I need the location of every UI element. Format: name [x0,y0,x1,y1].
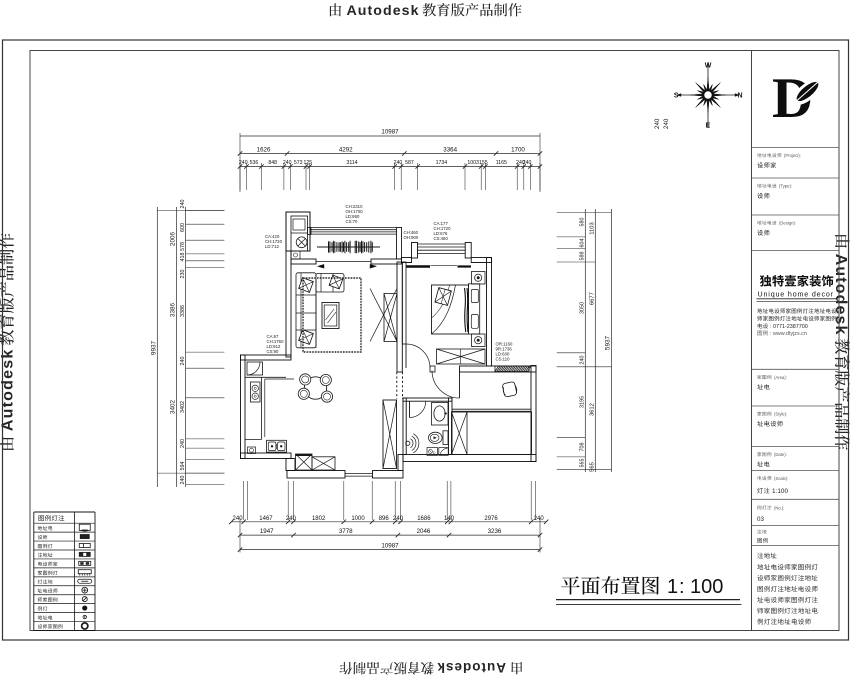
svg-text:565: 565 [580,459,586,468]
svg-text:1003: 1003 [467,160,479,166]
svg-text:(Date):: (Date): [774,452,787,457]
svg-text:3402: 3402 [180,401,186,413]
svg-text:(Project):: (Project): [784,153,801,158]
svg-text:240: 240 [283,160,292,166]
svg-text:708: 708 [580,443,586,452]
svg-text:3402: 3402 [170,399,177,414]
svg-text:2046: 2046 [417,528,431,535]
svg-text:240: 240 [180,439,186,448]
svg-text:1802: 1802 [312,516,326,522]
svg-text:1734: 1734 [436,160,448,166]
svg-text:1000: 1000 [351,516,365,522]
svg-text:100: 100 [690,576,723,598]
svg-text:1:100: 1:100 [772,488,788,495]
svg-text:9937: 9937 [151,340,158,355]
svg-text:(Style):: (Style): [774,412,787,417]
svg-text:2976: 2976 [484,516,498,522]
svg-text:565: 565 [590,462,596,472]
svg-text:3195: 3195 [580,396,586,408]
svg-text:230: 230 [180,270,186,279]
svg-text:CS:90: CS:90 [267,349,280,354]
svg-text:Autodesk: Autodesk [437,660,506,675]
svg-text:CS:110: CS:110 [496,357,511,362]
svg-text:Unique home decor: Unique home decor [758,291,834,299]
svg-text:240: 240 [580,356,586,365]
svg-text:2006: 2006 [170,231,177,246]
svg-text:3050: 3050 [580,302,586,314]
svg-text:W: W [705,63,712,70]
svg-text:600: 600 [180,223,186,232]
svg-text::: : [679,576,685,598]
svg-text:CS:460: CS:460 [434,236,449,241]
svg-text:3778: 3778 [339,528,353,535]
svg-text:1686: 1686 [417,516,431,522]
svg-text:N: N [738,93,743,100]
svg-text:240: 240 [663,118,670,129]
svg-text:(Area):: (Area): [774,375,787,380]
svg-text:580: 580 [580,218,586,227]
svg-text:CS:70: CS:70 [346,219,359,224]
svg-text:896: 896 [379,516,390,522]
svg-text:240: 240 [654,118,661,129]
svg-text:240: 240 [523,160,532,166]
svg-text:5937: 5937 [605,335,612,350]
svg-text:3386: 3386 [180,305,186,317]
svg-text:240: 240 [180,200,186,209]
svg-text:578: 578 [180,242,186,251]
svg-text:(No.):: (No.): [774,505,784,510]
svg-text:Autodesk: Autodesk [832,254,849,336]
svg-text:S: S [674,93,679,100]
svg-text:3114: 3114 [347,160,358,166]
svg-text:3364: 3364 [443,147,457,154]
svg-text:240: 240 [180,476,186,485]
svg-text:588: 588 [580,252,586,261]
svg-text:1: 1 [667,576,678,598]
svg-text:418: 418 [180,253,186,262]
svg-text:240: 240 [233,516,244,522]
svg-text:604: 604 [580,239,586,248]
svg-text:1626: 1626 [257,147,271,154]
svg-text:155: 155 [479,160,488,166]
svg-text:1700: 1700 [511,147,525,154]
svg-text:Autodesk: Autodesk [347,3,420,19]
svg-text:240: 240 [534,516,545,522]
svg-text:1103: 1103 [590,222,596,234]
svg-text:10987: 10987 [381,543,399,550]
svg-text:1947: 1947 [260,528,274,535]
svg-text:3386: 3386 [170,302,177,317]
svg-text:6677: 6677 [590,292,596,305]
svg-text:140: 140 [444,516,455,522]
svg-text:573: 573 [294,160,303,166]
svg-text:(Design):: (Design): [779,221,796,226]
svg-text:(Scale):: (Scale): [774,476,788,481]
svg-text:1165: 1165 [496,160,507,166]
svg-text:03: 03 [757,516,764,523]
svg-text:594: 594 [180,462,186,471]
svg-text:LD:712: LD:712 [265,244,279,249]
svg-text:E: E [706,123,711,130]
svg-text:125: 125 [303,160,312,166]
svg-text:848: 848 [268,160,277,166]
svg-text:240: 240 [394,160,403,166]
svg-text:4292: 4292 [339,147,353,154]
svg-text:240: 240 [180,357,186,366]
svg-text:536: 536 [250,160,259,166]
svg-text:3612: 3612 [590,403,596,416]
svg-text:240: 240 [239,160,248,166]
svg-text:10987: 10987 [381,129,399,136]
svg-text:(Type):: (Type): [779,184,792,189]
svg-text:587: 587 [405,160,414,166]
svg-text:: 0771-2387700: : 0771-2387700 [770,324,808,330]
svg-text:: www.dtyjzs.cn: : www.dtyjzs.cn [770,331,807,337]
svg-text:OH:900: OH:900 [404,235,419,240]
svg-text:1467: 1467 [259,516,273,522]
svg-text:3236: 3236 [488,528,502,535]
